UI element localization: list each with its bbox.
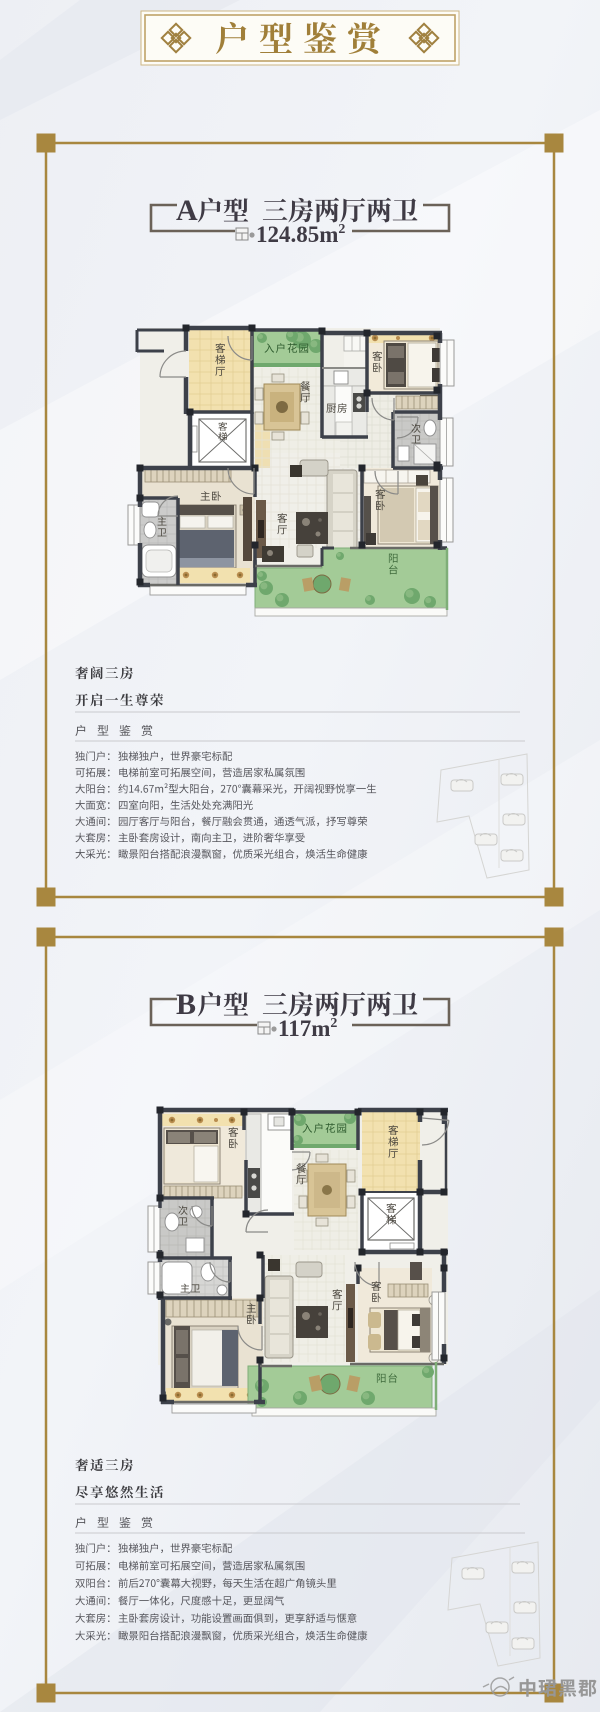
svg-text:B: B — [176, 988, 196, 1021]
svg-text:A: A — [176, 194, 198, 227]
svg-text:124.85m2: 124.85m2 — [256, 222, 345, 247]
svg-text:117m2: 117m2 — [278, 1016, 337, 1041]
